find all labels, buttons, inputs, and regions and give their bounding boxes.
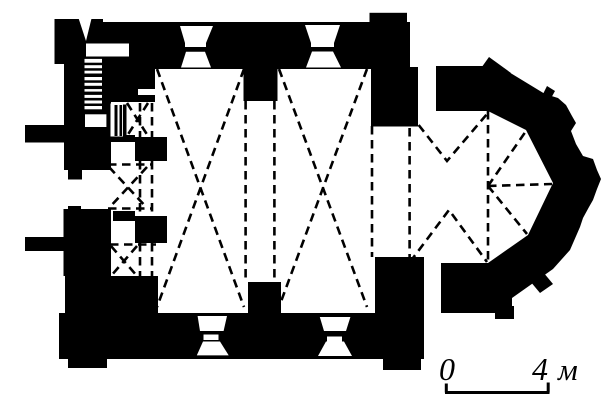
svg-text:0: 0	[439, 351, 455, 387]
svg-text:м: м	[557, 352, 578, 387]
svg-text:4: 4	[532, 351, 548, 387]
